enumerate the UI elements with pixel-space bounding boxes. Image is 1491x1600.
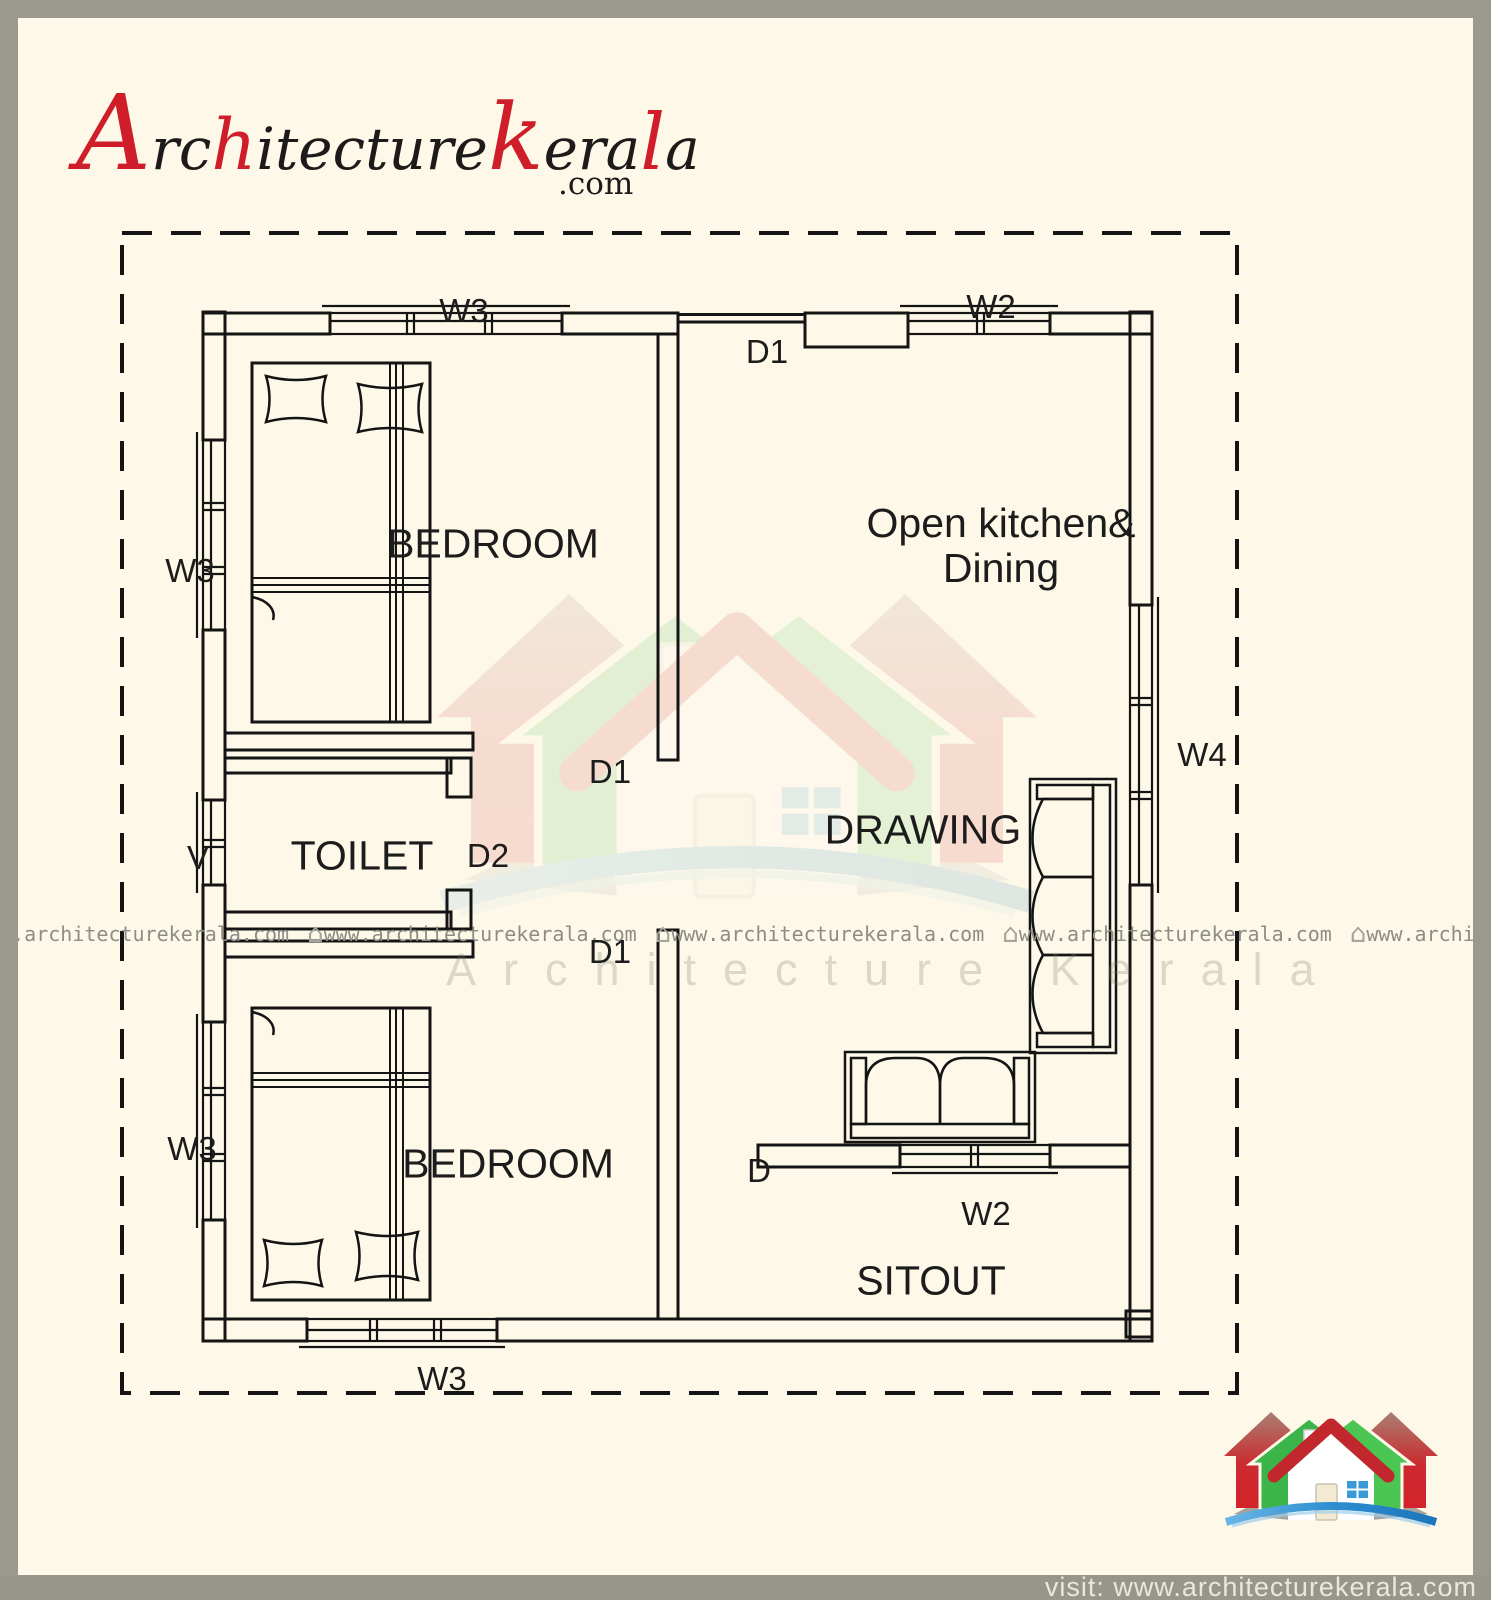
scanned-floor-plan-page: Architecturekerala .com <box>0 0 1491 1600</box>
tag-w4-right: W4 <box>1177 736 1227 774</box>
tag-w3-left-lower: W3 <box>167 1130 217 1168</box>
kitchen-label-line1: Open kitchen& <box>867 501 1136 546</box>
house-icon: ⌂ <box>307 919 324 949</box>
room-label-kitchen-dining: Open kitchen& Dining <box>867 501 1136 591</box>
tag-w2-top: W2 <box>966 288 1016 326</box>
tag-w3-top: W3 <box>439 292 489 330</box>
footer-url-text: visit: www.architecturekerala.com <box>1045 1572 1491 1600</box>
watermark-url: www.architecturekerala.com <box>1019 922 1332 946</box>
watermark-url: www.architecturekerala.com <box>1366 922 1473 946</box>
watermark-url: www.architecturekerala.com <box>671 922 984 946</box>
room-label-drawing: DRAWING <box>825 807 1022 854</box>
room-label-toilet: TOILET <box>291 833 434 880</box>
tag-d1-mid: D1 <box>589 753 631 791</box>
room-label-bedroom-1: BEDROOM <box>387 521 599 568</box>
watermark-url: www.architecturekerala.com <box>18 922 289 946</box>
faint-house-watermark <box>437 594 1036 913</box>
sofa-three-seat-icon <box>1030 779 1116 1053</box>
tag-d2: D2 <box>467 837 509 875</box>
sofa-two-seat-icon <box>845 1052 1035 1142</box>
footer-bar: visit: www.architecturekerala.com <box>0 1575 1491 1600</box>
brand-house-logo <box>1224 1412 1438 1526</box>
tag-v-left: V <box>187 839 209 877</box>
tag-d-sitout: D <box>747 1152 771 1190</box>
room-label-bedroom-2: BEDROOM <box>402 1141 614 1188</box>
tag-w2-sitout: W2 <box>961 1195 1011 1233</box>
plan-canvas: Architecturekerala .com <box>18 18 1473 1575</box>
tag-w3-bottom: W3 <box>417 1360 467 1398</box>
faint-brand-watermark: Architecture Kerala <box>446 944 1342 996</box>
house-icon: ⌂ <box>1350 919 1367 949</box>
kitchen-label-line2: Dining <box>867 546 1136 591</box>
tag-d1-top: D1 <box>746 333 788 371</box>
floor-plan-svg <box>18 18 1473 1575</box>
tag-d1-lower: D1 <box>589 933 631 971</box>
tag-w3-left-upper: W3 <box>165 552 215 590</box>
room-label-sitout: SITOUT <box>856 1258 1006 1305</box>
